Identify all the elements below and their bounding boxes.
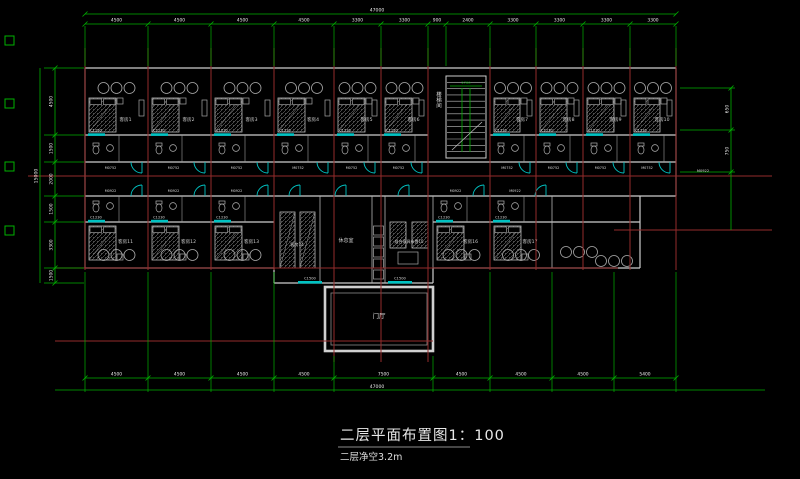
dim-top-value: 3300 (554, 18, 565, 24)
sink-icon (652, 145, 659, 152)
window-bar (633, 133, 650, 136)
dim-top-value: 4500 (298, 18, 309, 24)
furniture-room-label: 组合家具布置15 (394, 238, 424, 244)
pillow (104, 99, 116, 105)
room-label: 客房6 (407, 116, 419, 123)
desk (527, 100, 532, 116)
sofa-circle (609, 256, 620, 267)
toilet-icon (219, 146, 225, 154)
sofa-circle (587, 247, 598, 258)
dim-left-value: 1500 (49, 143, 55, 154)
toilet-icon (282, 146, 288, 154)
toilet-icon (441, 204, 447, 212)
door-arc (194, 185, 205, 196)
wardrobe-circle (299, 83, 310, 94)
lounge-label: 休息室 (338, 237, 353, 244)
sink-icon (107, 145, 114, 152)
sink-icon (605, 145, 612, 152)
dim-bottom-value: 4500 (456, 372, 467, 378)
toilet-icon (389, 146, 395, 154)
dim-top-value: 4500 (111, 18, 122, 24)
desk (621, 100, 626, 116)
toilet-icon (219, 204, 225, 212)
axis-marker (5, 36, 14, 45)
wardrobe-circle (111, 83, 122, 94)
room-label: 客房13 (244, 238, 259, 245)
door-arc (613, 162, 624, 173)
wardrobe-circle (412, 83, 423, 94)
toilet-tank (591, 143, 597, 146)
dim-top-value: 3300 (601, 18, 612, 24)
dim-bottom-value: 4500 (237, 372, 248, 378)
nightstand (465, 254, 471, 260)
room-label: 客房8 (562, 116, 574, 123)
dim-left-value: 2000 (49, 173, 55, 184)
shelf-unit (374, 226, 384, 235)
toilet-icon (498, 146, 504, 154)
wardrobe-circle (554, 83, 565, 94)
bed-twin (390, 222, 406, 248)
axis-marker (5, 162, 14, 171)
window-label: C1230 (495, 129, 507, 133)
wardrobe-circle (187, 83, 198, 94)
dim-bottom-value: 4500 (515, 372, 526, 378)
window-label: C1230 (339, 129, 351, 133)
pillow (555, 99, 567, 105)
pillow (216, 99, 228, 105)
door-arc (411, 162, 422, 173)
toilet-icon (156, 146, 162, 154)
door-arc (398, 185, 409, 196)
sofa-circle (596, 256, 607, 267)
stair-dim-label: 2700 (461, 81, 471, 85)
dim-top-value: 3300 (399, 18, 410, 24)
toilet-icon (93, 146, 99, 154)
desk (139, 100, 144, 116)
guest-room-top-5: 客房5C1230M0752 (337, 83, 377, 174)
wardrobe-circle (399, 83, 410, 94)
axis-marker (5, 226, 14, 235)
room-label: 客房3 (245, 116, 257, 123)
window-bar (586, 133, 603, 136)
dim-left-value: 1500 (49, 270, 55, 281)
pillow (104, 227, 116, 233)
sink-icon (356, 145, 363, 152)
sink-icon (170, 145, 177, 152)
nightstand (521, 98, 527, 104)
window-label: C1230 (386, 129, 398, 133)
pillow (90, 227, 102, 233)
pillow (509, 227, 521, 233)
sink-icon (455, 203, 462, 210)
window-bar (277, 133, 294, 136)
grid-layer (28, 48, 772, 362)
door-arc (317, 162, 328, 173)
door-label: M0752 (346, 166, 358, 170)
sink-icon (512, 203, 519, 210)
window-label: C1230 (588, 129, 600, 133)
toilet-tank (544, 143, 550, 146)
window-bar (298, 281, 322, 284)
door-arc (131, 162, 142, 173)
dim-left-value: 1500 (49, 203, 55, 214)
guest-room-top-10: 客房10C1230M0752 (633, 83, 672, 174)
toilet-tank (219, 143, 225, 146)
pillow (495, 99, 506, 105)
pillow (588, 99, 600, 105)
toilet-tank (156, 143, 162, 146)
toilet-tank (389, 143, 395, 146)
guest-room-top-7: 客房7C1230M0752 (493, 83, 532, 174)
window-label: C1500 (304, 277, 316, 281)
toilet-tank (498, 143, 504, 146)
window-label: C1230 (153, 129, 165, 133)
door-label: M0752 (501, 166, 513, 170)
window-label: C1230 (635, 129, 647, 133)
dim-top-value: 3300 (647, 18, 658, 24)
door-arc (194, 162, 205, 173)
wardrobe-circle (661, 83, 672, 94)
room14-label: 客房14 (290, 241, 304, 248)
dim-left-value: 4500 (49, 96, 55, 107)
pillow (602, 99, 614, 105)
pillow (230, 99, 242, 105)
wardrobe-circle (508, 83, 519, 94)
dim-bottom-overall-value: 47000 (370, 384, 385, 390)
drawing-subtitle: 二层净空3.2m (340, 451, 402, 463)
wardrobe-circle (495, 83, 506, 94)
toilet-tank (498, 201, 504, 204)
sink-icon (512, 145, 519, 152)
toilet-icon (591, 146, 597, 154)
door-label: M0752 (231, 166, 243, 170)
wardrobe-circle (286, 83, 297, 94)
pillow (648, 99, 659, 105)
dim-top-value: 4500 (174, 18, 185, 24)
room-label: 客房11 (118, 238, 133, 245)
door-label: M0752 (292, 166, 304, 170)
toilet-tank (219, 201, 225, 204)
door-label: M0752 (105, 166, 117, 170)
pillow (452, 227, 464, 233)
room-label: 客房10 (654, 116, 669, 123)
window-label: C1230 (90, 215, 102, 219)
window-label: C1230 (153, 215, 165, 219)
nightstand (615, 98, 621, 104)
door-label: M0752 (393, 166, 405, 170)
desk (265, 100, 270, 116)
dim-bottom-value: 4500 (577, 372, 588, 378)
window-label: C1230 (541, 129, 553, 133)
window-bar (214, 220, 231, 223)
wardrobe-circle (98, 83, 109, 94)
wardrobe-circle (635, 83, 646, 94)
stairwell-label: 楼梯间 (435, 91, 442, 110)
sink-icon (170, 203, 177, 210)
wardrobe-circle (614, 83, 625, 94)
dim-left-value: 3300 (49, 239, 55, 250)
door-arc (364, 162, 375, 173)
door-arc (257, 162, 268, 173)
wardrobe-circle (601, 83, 612, 94)
door-arc (289, 185, 300, 196)
wardrobe-circle (365, 83, 376, 94)
wardrobe-circle (250, 250, 261, 261)
dim-top-value: 2400 (462, 18, 473, 24)
axis-markers (5, 36, 14, 235)
axis-marker (5, 99, 14, 108)
toilet-tank (342, 143, 348, 146)
door-label: M0922 (231, 189, 243, 193)
door-label: M0922 (450, 189, 462, 193)
dim-top-value: 900 (433, 18, 442, 24)
door-label: M0752 (595, 166, 607, 170)
sink-icon (233, 203, 240, 210)
sofa-circle (622, 256, 633, 267)
pillow (495, 227, 507, 233)
table (398, 252, 418, 264)
window-label: C1230 (216, 129, 228, 133)
nightstand (568, 98, 574, 104)
toilet-icon (638, 146, 644, 154)
window-bar (493, 133, 510, 136)
window-label: C1230 (216, 215, 228, 219)
cad-viewport: 客房1C1230M0752客房2C1230M0752客房3C1230M0752客… (0, 0, 800, 479)
room-label: 客房4 (307, 116, 319, 123)
pillow (400, 99, 412, 105)
toilet-tank (282, 143, 288, 146)
window-bar (151, 220, 168, 223)
wardrobe-circle (352, 83, 363, 94)
pillow (508, 99, 519, 105)
wardrobe-circle (469, 250, 480, 261)
wardrobe-circle (224, 83, 235, 94)
window-bar (539, 133, 556, 136)
toilet-icon (93, 204, 99, 212)
shelf-unit (374, 259, 384, 268)
nightstand (243, 98, 249, 104)
pillow (353, 99, 365, 105)
wardrobe-circle (567, 83, 578, 94)
pillow (153, 227, 165, 233)
room-label: 客房17 (522, 238, 537, 245)
window-bar (436, 220, 453, 223)
wardrobe-circle (124, 83, 135, 94)
toilet-tank (638, 143, 644, 146)
wardrobe-circle (250, 83, 261, 94)
room-label: 客房7 (516, 116, 528, 123)
window-bar (388, 281, 412, 284)
toilet-tank (156, 201, 162, 204)
wardrobe-circle (339, 83, 350, 94)
dim-bottom-value: 5400 (639, 372, 650, 378)
wardrobe-circle (174, 83, 185, 94)
guest-room-top-8: 客房8C1230M0752 (539, 83, 579, 174)
drawing-title: 二层平面布置图1：100 (340, 427, 505, 444)
pillow (279, 99, 291, 105)
wardrobe-circle (187, 250, 198, 261)
door-arc (473, 185, 484, 196)
wardrobe-circle (541, 83, 552, 94)
staircase: 2700 (447, 81, 485, 152)
pillow (90, 99, 102, 105)
nightstand (366, 98, 372, 104)
pillow (167, 99, 179, 105)
floor-plan-canvas: 客房1C1230M0752客房2C1230M0752客房3C1230M0752客… (0, 0, 800, 479)
desk (574, 100, 579, 116)
room-label: 客房16 (463, 238, 478, 245)
wardrobe-circle (521, 83, 532, 94)
wardrobe-circle (386, 83, 397, 94)
pillow (216, 227, 228, 233)
dim-top-value: 3300 (507, 18, 518, 24)
guest-room-top-2: 客房2C1230M0752 (151, 83, 207, 174)
desk (419, 100, 424, 116)
wardrobe-circle (237, 83, 248, 94)
toilet-icon (342, 146, 348, 154)
nightstand (306, 98, 312, 104)
pillow (230, 227, 242, 233)
room-label: 客房12 (181, 238, 196, 245)
dim-bottom-value: 4500 (174, 372, 185, 378)
sink-icon (296, 145, 303, 152)
pillow (438, 227, 450, 233)
desk (667, 100, 672, 116)
toilet-icon (156, 204, 162, 212)
window-bar (214, 133, 231, 136)
wardrobe-circle (161, 83, 172, 94)
toilet-tank (93, 143, 99, 146)
wardrobe-circle (648, 83, 659, 94)
shelf-unit (374, 248, 384, 257)
sofa-circle (561, 247, 572, 258)
grid-horizontal-lines (28, 176, 772, 341)
window-bar (384, 133, 401, 136)
door-arc (131, 185, 142, 196)
pillow (635, 99, 646, 105)
pillow (339, 99, 351, 105)
desk (372, 100, 377, 116)
sink-icon (233, 145, 240, 152)
shelf-unit (374, 270, 384, 279)
window-label: C1230 (279, 129, 291, 133)
pillow (167, 227, 179, 233)
door-label: M0752 (548, 166, 560, 170)
door-label: M0922 (168, 189, 180, 193)
guest-room-top-1: 客房1C1230M0752 (88, 83, 144, 174)
nightstand (180, 98, 186, 104)
door-arc (659, 162, 670, 173)
entrance-label: 门厅 (373, 311, 387, 320)
nightstand (413, 98, 419, 104)
dim-right-value: 750 (725, 147, 731, 156)
guest-room-top-6: 客房6C1230M0752 (384, 83, 424, 174)
dim-top-overall-value: 47000 (370, 8, 385, 14)
nightstand (661, 98, 667, 104)
sink-icon (558, 145, 565, 152)
sink-icon (107, 203, 114, 210)
door-arc (519, 162, 530, 173)
guest-room-top-9: 客房9C1230M0752 (586, 83, 626, 174)
toilet-tank (441, 201, 447, 204)
window-bar (88, 220, 105, 223)
dim-bottom-value: 7500 (378, 372, 389, 378)
window-bar (88, 133, 105, 136)
guest-room-top-4: 客房4C1230M0752 (277, 83, 330, 174)
pillow (153, 99, 165, 105)
bed-twin (412, 222, 428, 248)
wardrobe-circle (312, 83, 323, 94)
door-label: M0752 (641, 166, 653, 170)
pillow (293, 99, 305, 105)
shelf-column (374, 226, 384, 279)
door-label: M0752 (168, 166, 180, 170)
window-bar (337, 133, 354, 136)
room-label: 客房2 (182, 116, 194, 123)
guest-room-top-3: 客房3C1230M0752 (214, 83, 270, 174)
center-special-rooms: C1500C1500 (280, 185, 428, 284)
door-arc (535, 185, 546, 196)
toilet-icon (498, 204, 504, 212)
dim-top-value: 4500 (237, 18, 248, 24)
window-label: C1500 (394, 277, 406, 281)
wardrobe-circle (588, 83, 599, 94)
dim-bottom-value: 4500 (298, 372, 309, 378)
pillow (386, 99, 398, 105)
right-door-label: M0922 (697, 169, 709, 173)
pillow (541, 99, 553, 105)
window-bar (151, 133, 168, 136)
dim-bottom-value: 4500 (111, 372, 122, 378)
wardrobe-circle (529, 250, 540, 261)
room-label: 客房1 (119, 116, 131, 123)
door-arc (257, 185, 268, 196)
window-label: C1230 (438, 215, 450, 219)
nightstand (117, 98, 123, 104)
toilet-tank (93, 201, 99, 204)
toilet-icon (544, 146, 550, 154)
room-label: 客房9 (609, 116, 621, 123)
sink-icon (403, 145, 410, 152)
dim-left-overall-value: 15000 (34, 169, 40, 184)
dim-top-value: 3300 (352, 18, 363, 24)
door-arc (566, 162, 577, 173)
window-label: C1230 (90, 129, 102, 133)
window-label: C1230 (495, 215, 507, 219)
room-label: 客房5 (360, 116, 372, 123)
door-arc (335, 185, 346, 196)
desk (325, 100, 330, 116)
wardrobe-circle (124, 250, 135, 261)
dimension-layer: 4500450045004500330033009002400330033003… (34, 8, 766, 393)
door-label: M0922 (509, 189, 521, 193)
door-label: M0922 (105, 189, 117, 193)
shelf-unit (374, 237, 384, 246)
window-bar (493, 220, 510, 223)
dim-right-value: 650 (725, 105, 731, 114)
desk (202, 100, 207, 116)
